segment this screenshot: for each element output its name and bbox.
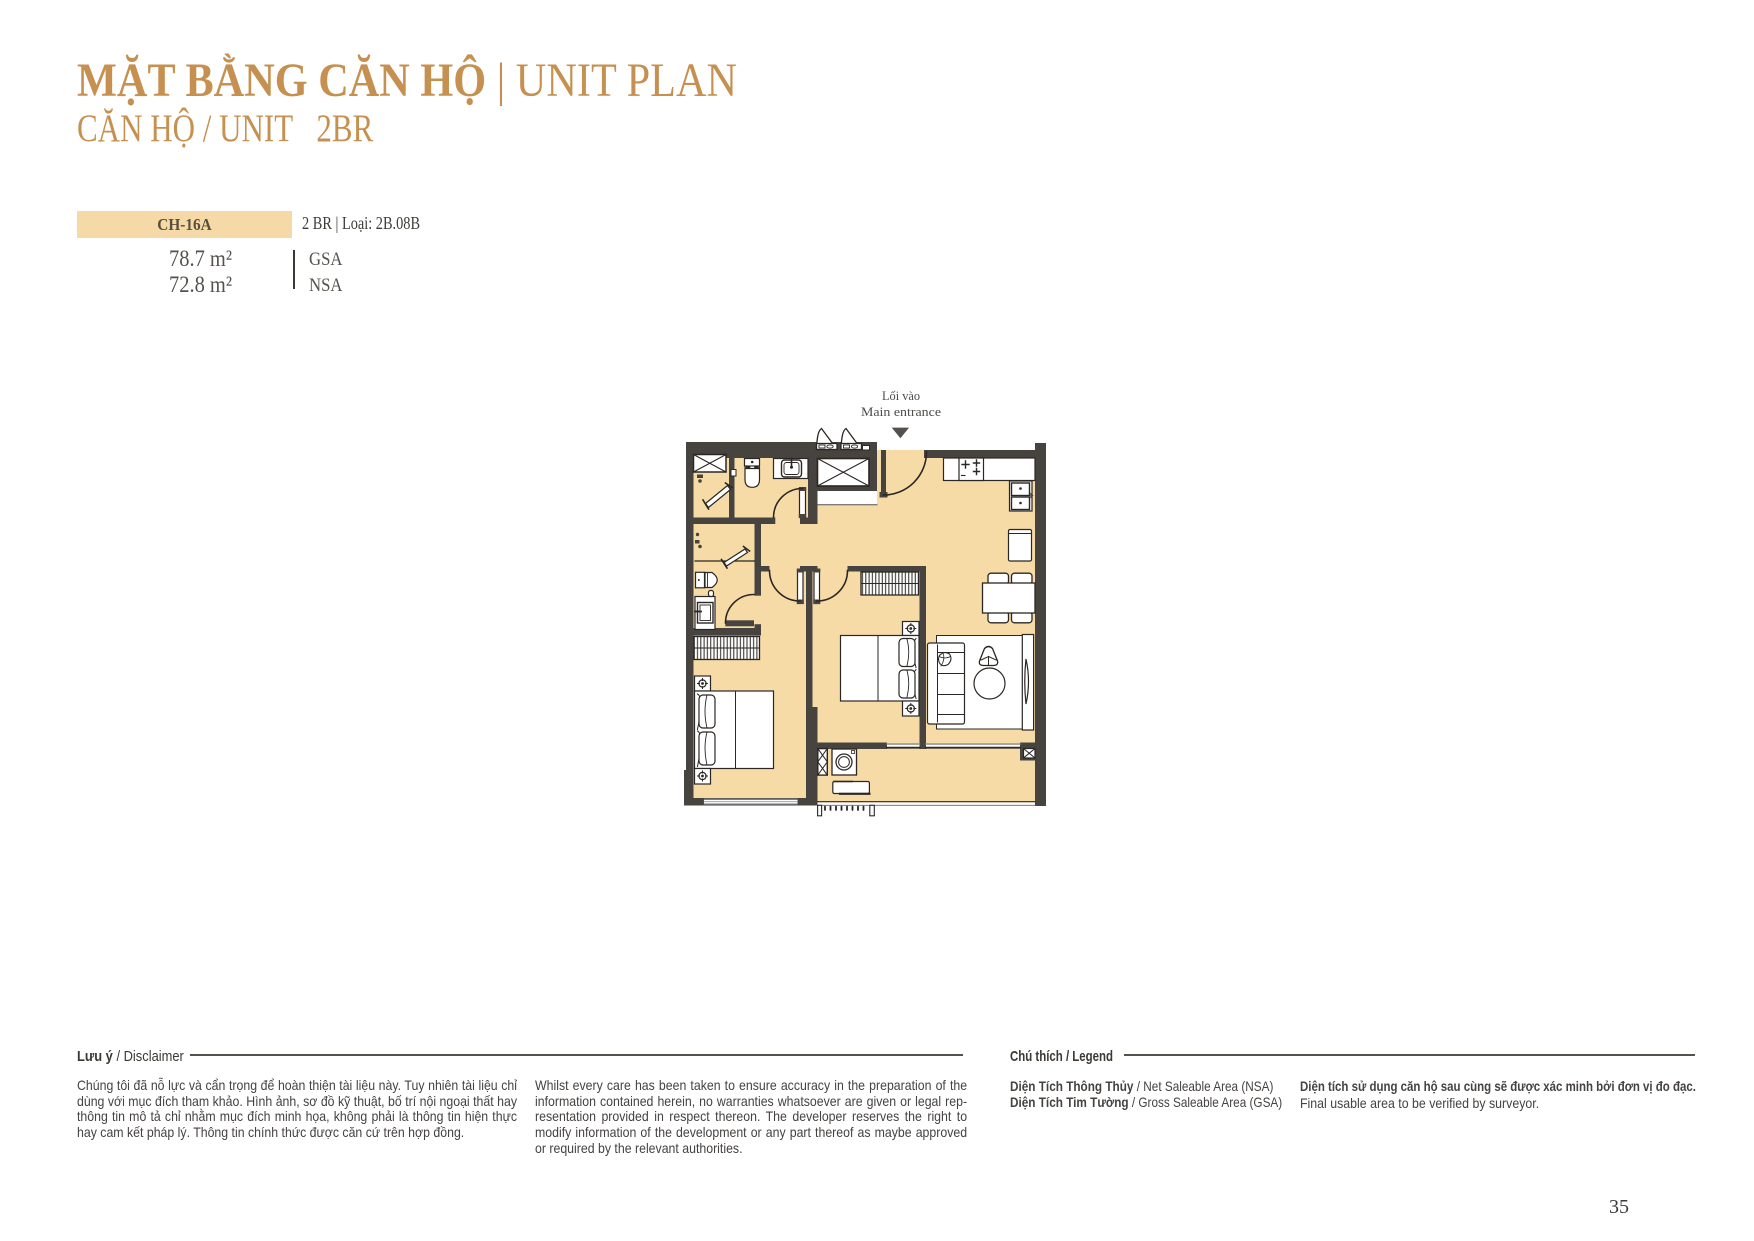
svg-text:Main entrance: Main entrance	[861, 404, 941, 419]
svg-text:Lối vào: Lối vào	[882, 388, 920, 403]
